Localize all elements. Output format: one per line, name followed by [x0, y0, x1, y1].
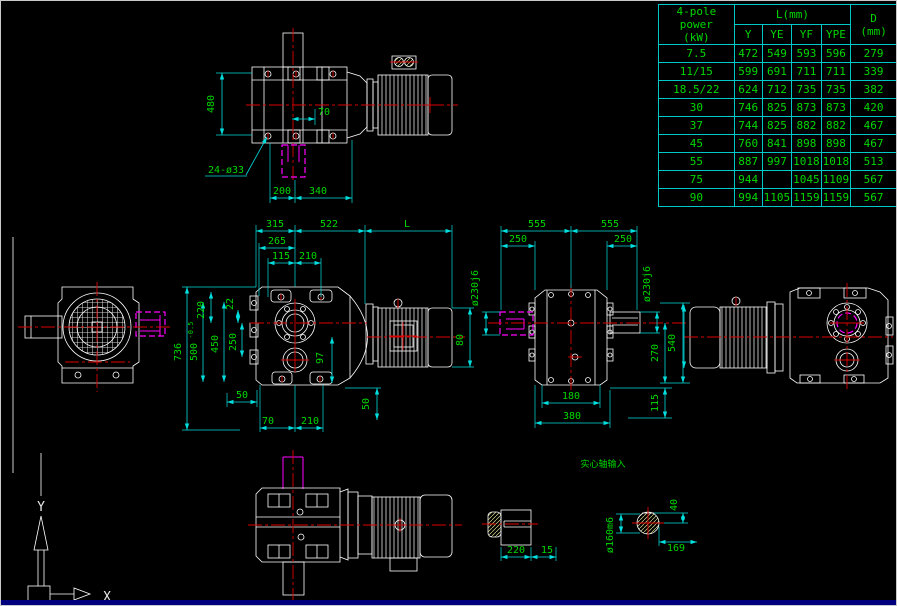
window-frame [0, 0, 897, 606]
cad-viewport[interactable]: 480 70 24-ø33 200 340 [0, 0, 897, 606]
